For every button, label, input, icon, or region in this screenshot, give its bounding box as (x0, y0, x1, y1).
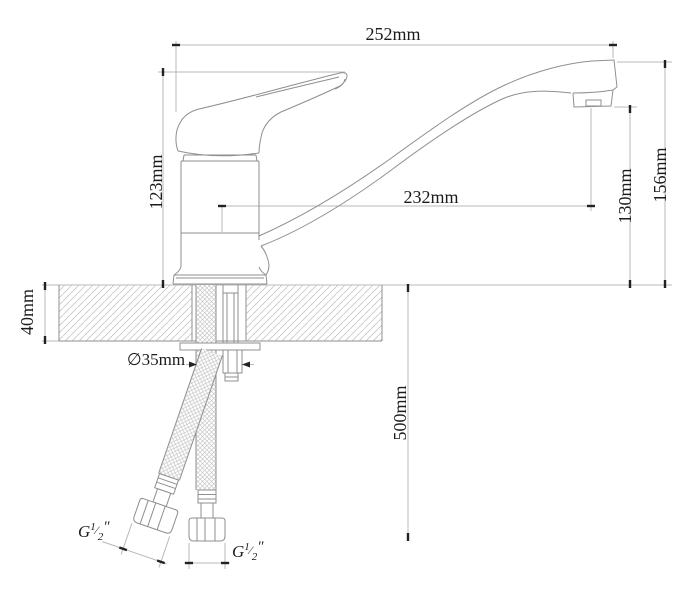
faucet-outline (173, 60, 617, 284)
spout-underside (573, 87, 617, 93)
tick-left-nut-a (119, 547, 127, 550)
thread-size-label-left: G1⁄2″ (78, 519, 110, 543)
faucet-handle-inner-line (256, 77, 345, 97)
slab-hatch-right (246, 285, 382, 341)
tick-left-nut-b (157, 560, 165, 563)
mounting-nut (223, 350, 242, 381)
dim-spout-reach-label: 232mm (403, 187, 458, 207)
faucet-base-flare-left (174, 267, 181, 275)
hose-ferrule-right (198, 490, 216, 503)
faucet-base-flare-right (259, 267, 266, 275)
dim-outlet-height-label: 130mm (615, 168, 635, 223)
spout-upper-edge (259, 60, 617, 236)
mounting-stud (223, 285, 238, 343)
hose-hex-nut-right (189, 518, 225, 541)
thread-size-label-right: G1⁄2″ (232, 539, 264, 563)
hose-neck-right (201, 503, 213, 518)
technical-drawing-canvas: 252mm 123mm 232mm 130mm 156mm 40mm ∅35mm… (0, 0, 700, 590)
hose-fitting-right (189, 490, 225, 541)
dim-hose-length-label: 500mm (390, 385, 410, 440)
washer-plate (180, 343, 260, 350)
slab-hatch-left (59, 285, 192, 341)
dim-overall-length-label: 252mm (365, 24, 420, 44)
dim-body-height-label: 123mm (146, 154, 166, 209)
dim-total-height-label: 156mm (650, 147, 670, 202)
dim-left-nut-line (102, 542, 166, 564)
dim-counter-thickness-label: 40mm (17, 289, 37, 335)
faucet-base-plate (173, 275, 267, 284)
dim-hole-diameter-label: ∅35mm (127, 350, 185, 369)
faucet-installation-diagram: 252mm 123mm 232mm 130mm 156mm 40mm ∅35mm… (0, 0, 700, 590)
countertop-slab (59, 285, 382, 341)
faucet-handle-outline (176, 73, 347, 153)
spout-lower-edge (261, 91, 571, 246)
spout-aerator-outlet (586, 100, 601, 106)
hole-arrow-right (242, 362, 250, 368)
spout-root-bulge (261, 246, 269, 275)
